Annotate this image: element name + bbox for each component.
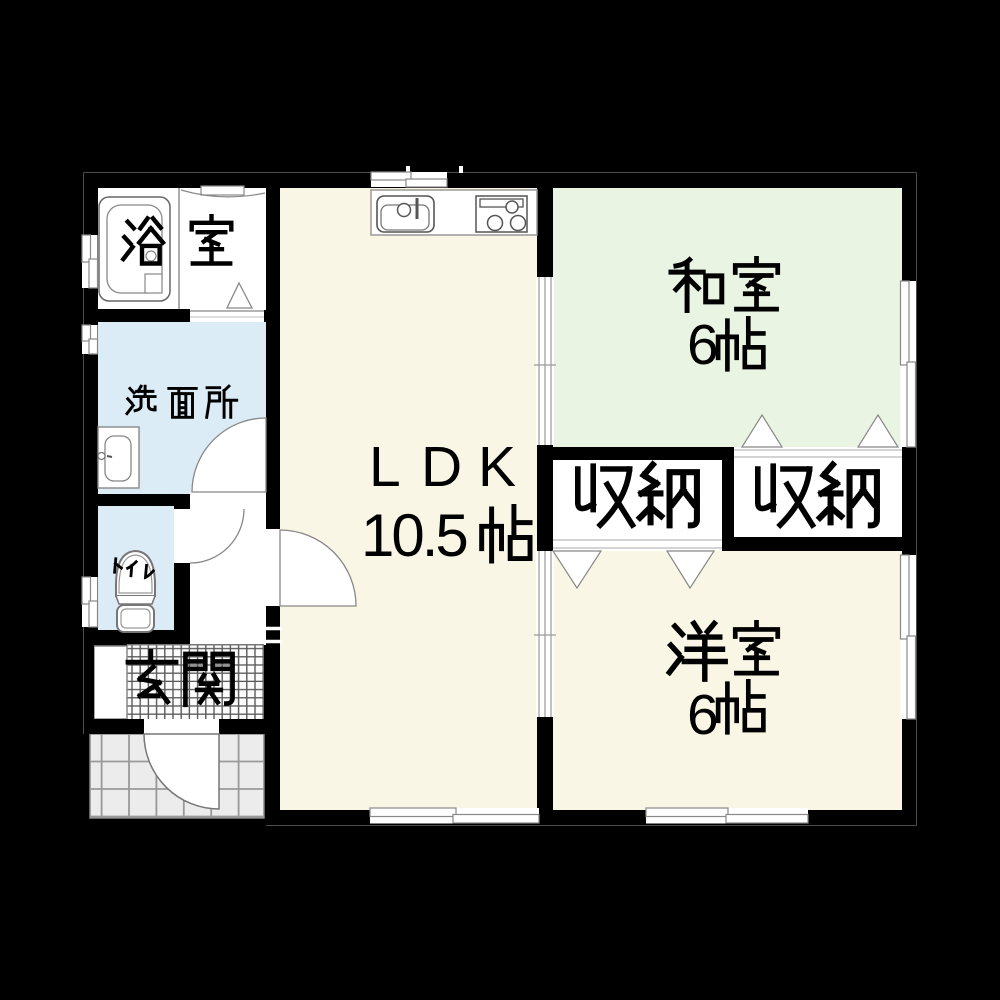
svg-text:10.5: 10.5 xyxy=(361,502,466,569)
svg-text:L: L xyxy=(369,435,401,499)
svg-text:6: 6 xyxy=(687,313,719,377)
svg-text:K: K xyxy=(478,435,516,499)
svg-text:6: 6 xyxy=(687,683,719,747)
svg-text:D: D xyxy=(421,435,462,499)
